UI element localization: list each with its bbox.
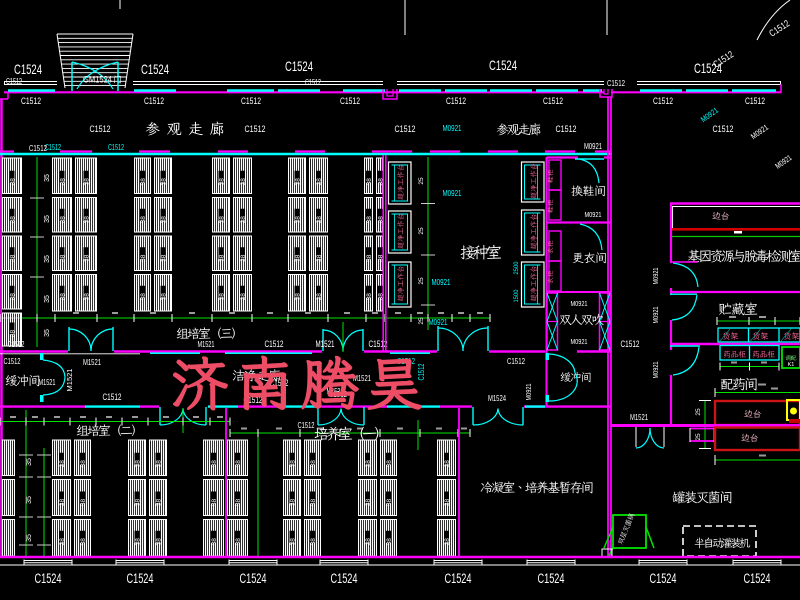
svg-text:2500: 2500 [514, 261, 520, 275]
svg-text:38: 38 [211, 499, 218, 507]
svg-text:C1512: C1512 [713, 124, 734, 135]
svg-text:C1512: C1512 [417, 363, 426, 380]
svg-text:C1512: C1512 [21, 96, 41, 107]
svg-text:C1512: C1512 [4, 357, 21, 366]
svg-text:38: 38 [140, 293, 147, 301]
svg-text:38: 38 [295, 178, 302, 186]
svg-text:C1512: C1512 [653, 96, 673, 107]
svg-text:C1524: C1524 [538, 571, 565, 586]
svg-text:38: 38 [219, 178, 226, 186]
svg-text:38: 38 [386, 460, 393, 468]
svg-text:38: 38 [365, 538, 372, 546]
svg-text:C1512: C1512 [446, 96, 466, 107]
svg-text:38: 38 [60, 216, 67, 224]
svg-text:38: 38 [386, 499, 393, 507]
svg-text:38: 38 [80, 460, 87, 468]
svg-text:C1512: C1512 [90, 124, 111, 135]
svg-text:25: 25 [418, 227, 425, 235]
svg-text:25: 25 [418, 177, 425, 185]
svg-text:35: 35 [44, 295, 51, 303]
svg-text:C1524: C1524 [14, 61, 42, 77]
svg-text:38: 38 [290, 538, 297, 546]
svg-text:M1521: M1521 [198, 340, 215, 349]
svg-text:C1524: C1524 [285, 58, 313, 74]
svg-text:38: 38 [59, 499, 66, 507]
svg-text:M0921: M0921 [524, 384, 533, 401]
svg-text:38: 38 [161, 293, 168, 301]
svg-text:38: 38 [10, 293, 17, 301]
svg-text:38: 38 [219, 254, 226, 262]
svg-text:38: 38 [161, 216, 168, 224]
svg-text:38: 38 [235, 460, 242, 468]
svg-text:38: 38 [60, 293, 67, 301]
svg-text:38: 38 [316, 254, 323, 262]
svg-text:38: 38 [60, 178, 67, 186]
svg-text:38: 38 [161, 254, 168, 262]
svg-text:C1512: C1512 [108, 143, 124, 152]
svg-text:38: 38 [140, 254, 147, 262]
svg-text:38: 38 [84, 254, 91, 262]
svg-text:38: 38 [295, 254, 302, 262]
svg-text:38: 38 [310, 499, 317, 507]
svg-text:C1512: C1512 [305, 78, 321, 87]
svg-text:GM1524: GM1524 [83, 75, 112, 86]
svg-text:M1521: M1521 [39, 378, 56, 387]
svg-text:38: 38 [156, 538, 163, 546]
svg-text:38: 38 [84, 216, 91, 224]
svg-text:1500: 1500 [514, 289, 520, 303]
svg-text:C1524: C1524 [240, 571, 267, 586]
svg-text:C1512: C1512 [45, 143, 61, 152]
svg-text:25: 25 [418, 317, 425, 325]
svg-text:38: 38 [366, 254, 373, 262]
svg-text:38: 38 [316, 293, 323, 301]
svg-text:38: 38 [219, 293, 226, 301]
svg-text:35: 35 [26, 496, 33, 504]
svg-text:38: 38 [10, 330, 17, 338]
svg-text:C1512: C1512 [395, 124, 416, 135]
svg-text:M1521: M1521 [83, 358, 101, 367]
svg-text:C1524: C1524 [650, 571, 677, 586]
svg-text:C1512: C1512 [144, 96, 164, 107]
svg-text:38: 38 [366, 178, 373, 186]
svg-text:38: 38 [310, 460, 317, 468]
svg-text:C1524: C1524 [445, 571, 472, 586]
svg-text:38: 38 [290, 460, 297, 468]
svg-text:38: 38 [84, 293, 91, 301]
svg-text:38: 38 [219, 216, 226, 224]
svg-text:C1512: C1512 [340, 96, 360, 107]
svg-text:C1512: C1512 [621, 339, 640, 349]
svg-text:38: 38 [10, 216, 17, 224]
svg-text:38: 38 [240, 254, 247, 262]
svg-text:38: 38 [365, 499, 372, 507]
svg-text:38: 38 [135, 460, 142, 468]
svg-text:K1: K1 [788, 362, 795, 368]
svg-text:25: 25 [695, 408, 702, 416]
svg-text:38: 38 [84, 178, 91, 186]
svg-text:25: 25 [695, 433, 702, 441]
svg-text:C1512: C1512 [245, 124, 266, 135]
svg-text:38: 38 [444, 460, 451, 468]
svg-text:M0921: M0921 [429, 317, 448, 327]
svg-text:M0921: M0921 [584, 142, 602, 151]
svg-text:38: 38 [310, 538, 317, 546]
svg-text:C1524: C1524 [35, 571, 62, 586]
svg-text:38: 38 [386, 538, 393, 546]
svg-text:M0921: M0921 [585, 210, 602, 219]
svg-text:38: 38 [366, 293, 373, 301]
svg-text:C1524: C1524 [141, 61, 169, 77]
svg-text:25: 25 [418, 277, 425, 285]
svg-text:35: 35 [44, 329, 51, 337]
svg-text:38: 38 [295, 293, 302, 301]
svg-text:M0921: M0921 [432, 277, 451, 287]
svg-text:C1512: C1512 [241, 96, 261, 107]
svg-text:M0921: M0921 [651, 268, 660, 285]
svg-text:C1512: C1512 [265, 339, 284, 349]
svg-text:M0921: M0921 [571, 299, 588, 308]
svg-text:C1524: C1524 [489, 57, 517, 73]
svg-text:C1512: C1512 [543, 96, 563, 107]
svg-text:38: 38 [444, 538, 451, 546]
svg-text:38: 38 [235, 538, 242, 546]
svg-text:38: 38 [211, 460, 218, 468]
svg-text:38: 38 [140, 178, 147, 186]
svg-text:35: 35 [44, 215, 51, 223]
svg-text:C1512: C1512 [8, 340, 25, 349]
svg-text:38: 38 [140, 216, 147, 224]
svg-text:38: 38 [240, 178, 247, 186]
svg-text:38: 38 [59, 460, 66, 468]
svg-text:38: 38 [10, 254, 17, 262]
svg-text:38: 38 [444, 499, 451, 507]
svg-text:38: 38 [240, 216, 247, 224]
svg-text:C1524: C1524 [744, 571, 771, 586]
svg-text:C1512: C1512 [29, 143, 47, 153]
svg-text:38: 38 [156, 460, 163, 468]
svg-text:C1524: C1524 [331, 571, 358, 586]
svg-text:C1512: C1512 [507, 356, 525, 366]
svg-text:C1524: C1524 [127, 571, 154, 586]
svg-text:M0921: M0921 [651, 362, 660, 379]
svg-text:M1521: M1521 [65, 369, 74, 392]
svg-text:M0921: M0921 [443, 124, 462, 133]
svg-text:38: 38 [80, 538, 87, 546]
svg-text:35: 35 [44, 174, 51, 182]
svg-text:M1521: M1521 [630, 412, 648, 422]
svg-text:M1524: M1524 [488, 393, 506, 403]
svg-text:C1512: C1512 [6, 77, 22, 86]
svg-text:35: 35 [26, 458, 33, 466]
svg-text:C1512: C1512 [607, 78, 625, 88]
svg-text:38: 38 [156, 499, 163, 507]
svg-text:38: 38 [80, 499, 87, 507]
svg-text:M0921: M0921 [571, 337, 588, 346]
svg-text:38: 38 [365, 460, 372, 468]
svg-text:38: 38 [211, 538, 218, 546]
svg-text:M0921: M0921 [443, 188, 462, 198]
svg-text:M0921: M0921 [651, 307, 660, 324]
svg-text:35: 35 [44, 255, 51, 263]
svg-text:38: 38 [10, 178, 17, 186]
svg-text:38: 38 [366, 216, 373, 224]
svg-text:C1512: C1512 [103, 392, 122, 402]
svg-text:M1521: M1521 [353, 373, 371, 383]
svg-text:38: 38 [295, 216, 302, 224]
svg-text:38: 38 [316, 216, 323, 224]
svg-text:38: 38 [316, 178, 323, 186]
svg-text:38: 38 [135, 538, 142, 546]
svg-text:M1521: M1521 [316, 339, 335, 349]
svg-text:35: 35 [26, 534, 33, 542]
svg-text:38: 38 [59, 538, 66, 546]
svg-text:C1512: C1512 [298, 421, 315, 430]
svg-text:38: 38 [135, 499, 142, 507]
svg-text:38: 38 [60, 254, 67, 262]
svg-text:C1512: C1512 [369, 339, 388, 349]
svg-text:C1512: C1512 [556, 124, 577, 135]
svg-text:38: 38 [290, 499, 297, 507]
svg-text:C1512: C1512 [745, 96, 765, 107]
svg-text:38: 38 [235, 499, 242, 507]
svg-text:38: 38 [161, 178, 168, 186]
svg-text:38: 38 [240, 293, 247, 301]
